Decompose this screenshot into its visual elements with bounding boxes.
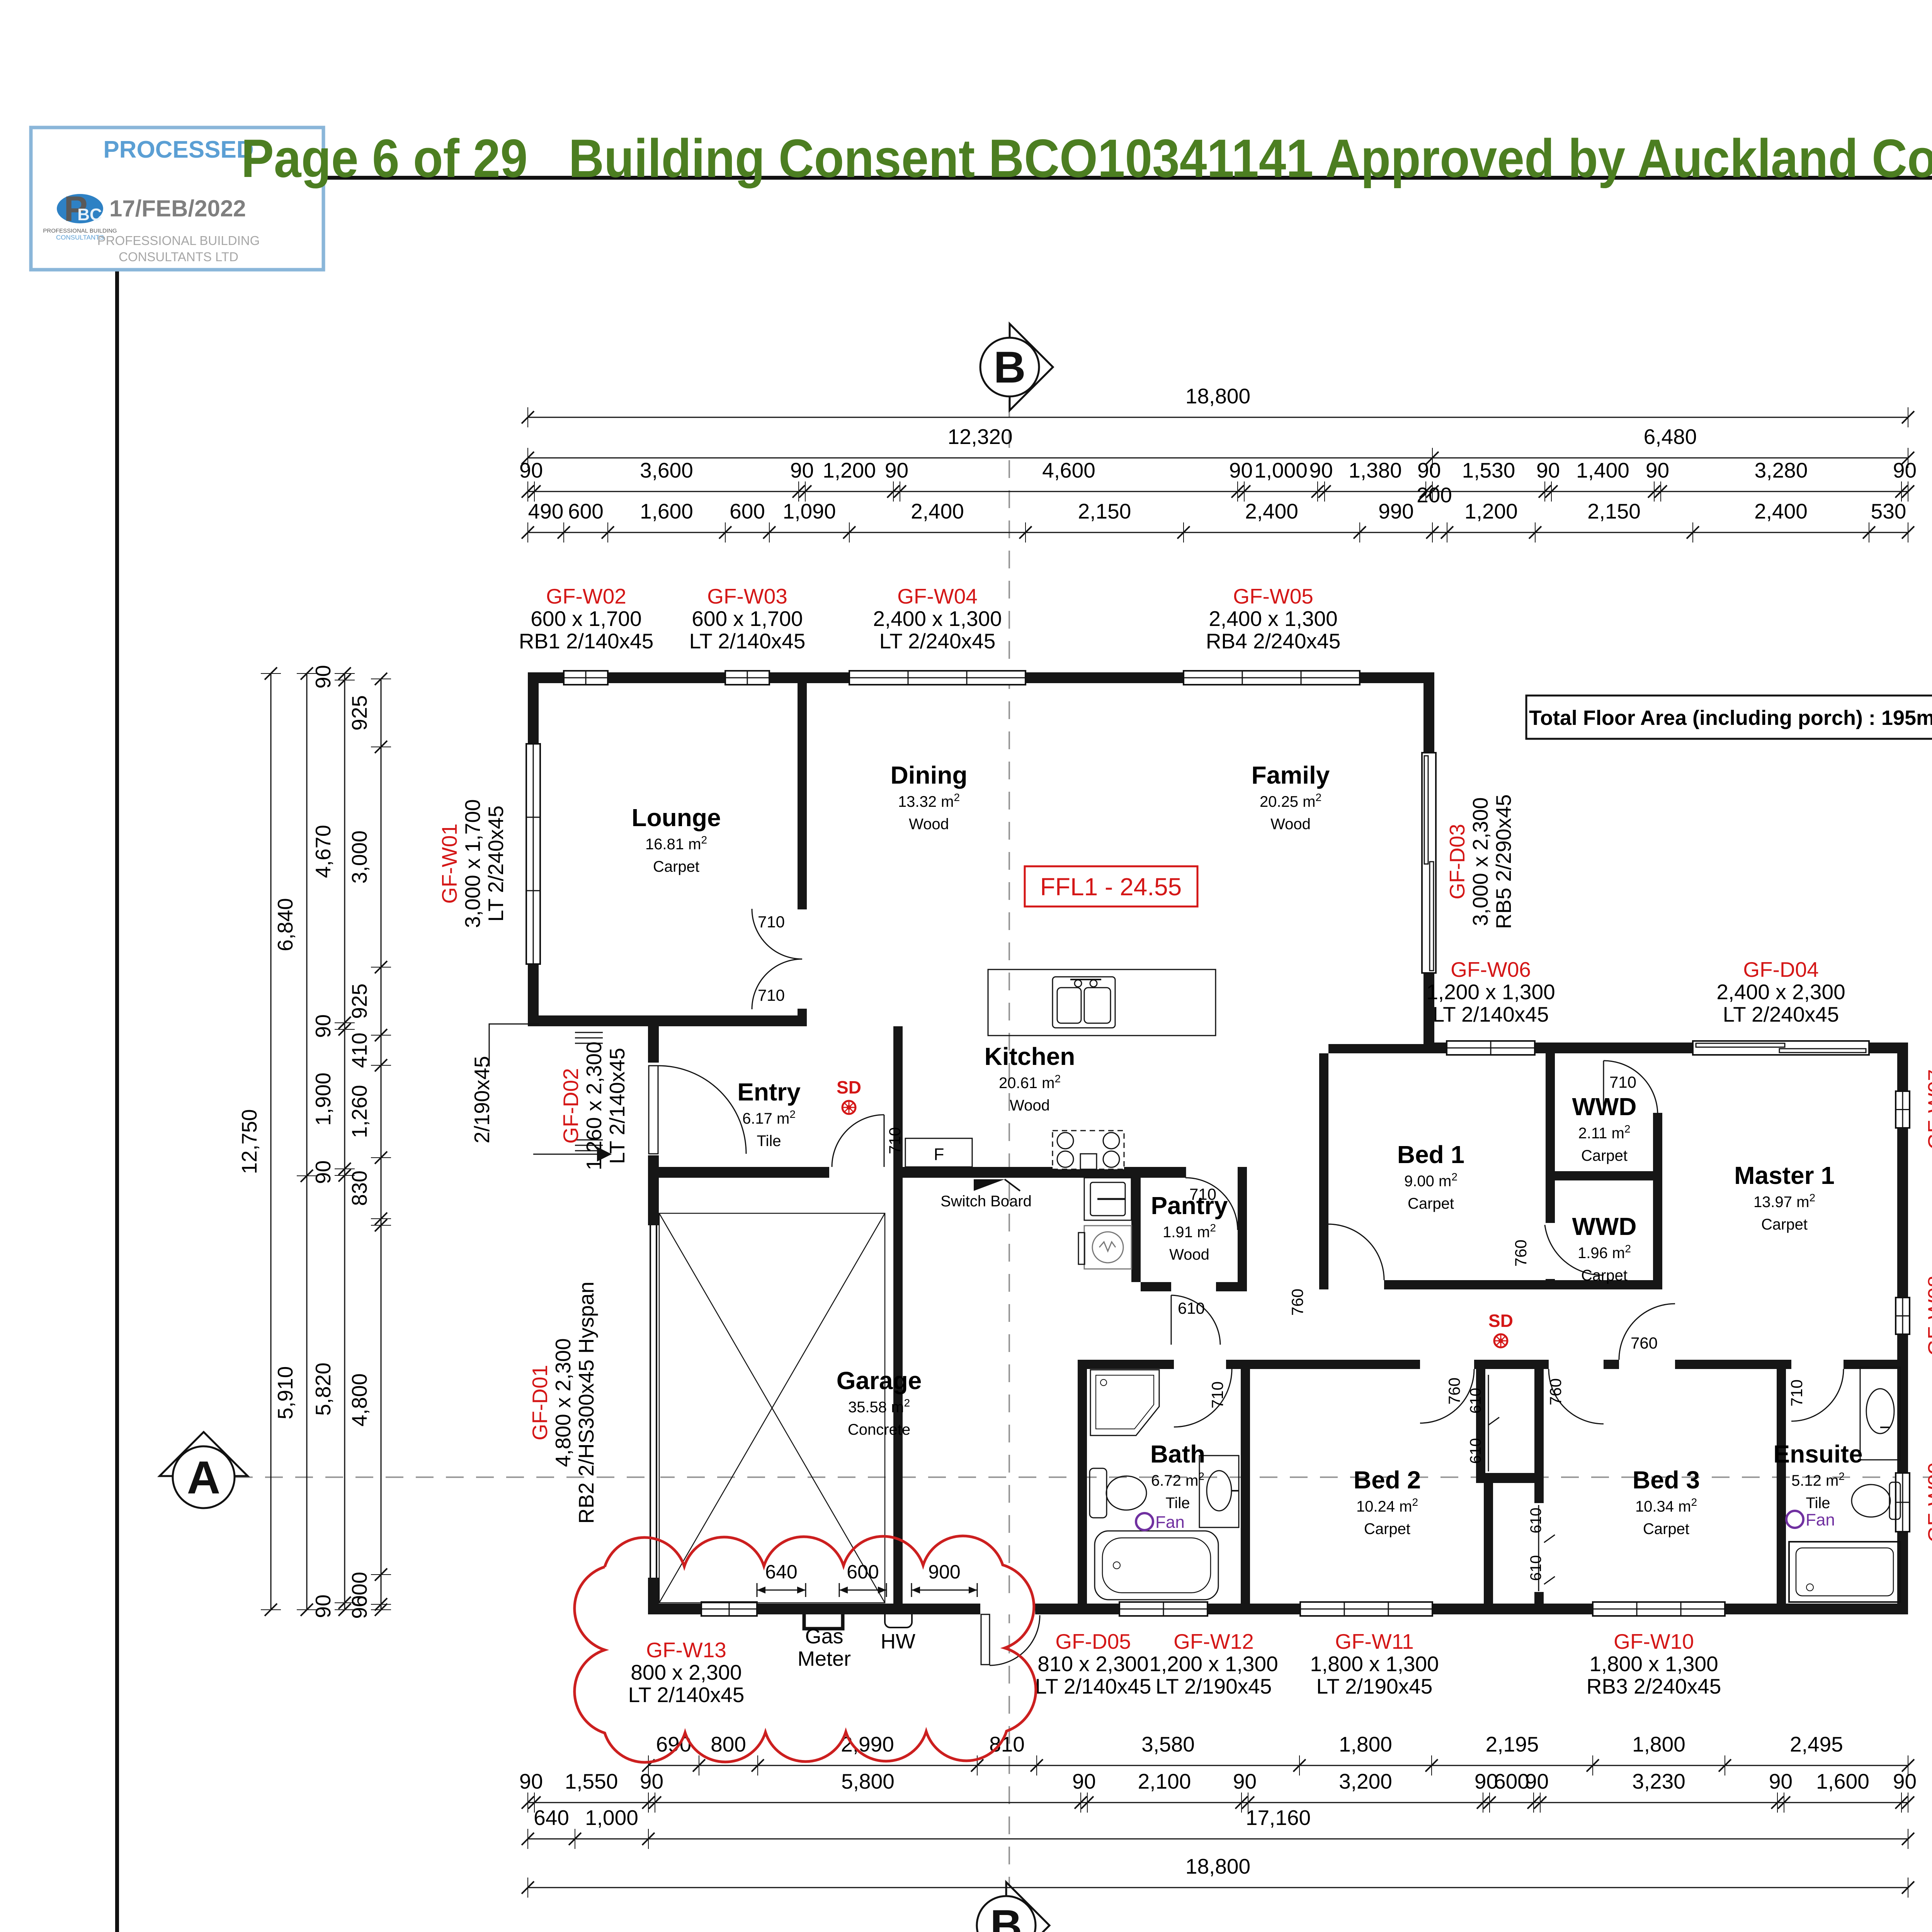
svg-text:1,000: 1,000 bbox=[1254, 458, 1308, 482]
svg-text:4,600: 4,600 bbox=[1042, 458, 1095, 482]
svg-text:BC: BC bbox=[77, 205, 102, 224]
svg-text:LT 2/190x45: LT 2/190x45 bbox=[1316, 1674, 1433, 1698]
svg-text:13.97 m2: 13.97 m2 bbox=[1753, 1192, 1815, 1211]
svg-text:Concrete: Concrete bbox=[848, 1421, 910, 1438]
svg-text:1.91 m2: 1.91 m2 bbox=[1163, 1222, 1216, 1241]
svg-text:90: 90 bbox=[311, 665, 335, 689]
svg-text:Switch Board: Switch Board bbox=[940, 1193, 1032, 1210]
svg-text:810: 810 bbox=[989, 1732, 1025, 1756]
svg-text:Master 1: Master 1 bbox=[1734, 1162, 1835, 1189]
svg-text:4,670: 4,670 bbox=[311, 825, 335, 878]
svg-text:Gas: Gas bbox=[805, 1625, 843, 1648]
svg-text:2.11 m2: 2.11 m2 bbox=[1578, 1123, 1631, 1142]
svg-text:610: 610 bbox=[1178, 1299, 1205, 1317]
svg-text:FFL1 - 24.55: FFL1 - 24.55 bbox=[1040, 873, 1182, 901]
svg-text:2/190x45: 2/190x45 bbox=[470, 1056, 494, 1143]
svg-text:90: 90 bbox=[311, 1014, 335, 1038]
svg-text:10.24 m2: 10.24 m2 bbox=[1356, 1496, 1418, 1515]
svg-text:1,200 x 1,300: 1,200 x 1,300 bbox=[1149, 1652, 1278, 1676]
svg-text:CONSULTANTS LTD: CONSULTANTS LTD bbox=[119, 250, 238, 264]
svg-text:90: 90 bbox=[1525, 1769, 1549, 1793]
svg-text:GF-W10: GF-W10 bbox=[1614, 1629, 1694, 1653]
svg-text:Carpet: Carpet bbox=[1643, 1520, 1689, 1537]
svg-text:GF-W04: GF-W04 bbox=[897, 584, 978, 608]
svg-text:90: 90 bbox=[640, 1769, 663, 1793]
svg-text:Bath: Bath bbox=[1150, 1440, 1205, 1468]
svg-text:710: 710 bbox=[1208, 1381, 1226, 1408]
svg-text:1,200 x 1,300: 1,200 x 1,300 bbox=[1426, 980, 1555, 1004]
svg-text:710: 710 bbox=[758, 986, 785, 1004]
svg-text:GF-W11: GF-W11 bbox=[1335, 1629, 1414, 1653]
svg-text:RB3 2/240x45: RB3 2/240x45 bbox=[1587, 1674, 1721, 1698]
svg-text:PROFESSIONAL BUILDING: PROFESSIONAL BUILDING bbox=[97, 233, 260, 248]
svg-text:GF-D01: GF-D01 bbox=[528, 1365, 552, 1440]
svg-text:RB1 2/140x45: RB1 2/140x45 bbox=[519, 629, 654, 653]
svg-text:2,150: 2,150 bbox=[1078, 499, 1131, 523]
svg-text:90: 90 bbox=[1893, 458, 1917, 482]
svg-text:GF-W09: GF-W09 bbox=[1923, 1462, 1932, 1543]
svg-text:LT 2/140x45: LT 2/140x45 bbox=[628, 1683, 745, 1707]
svg-text:GF-W13: GF-W13 bbox=[646, 1638, 726, 1662]
svg-text:LT 2/140x45: LT 2/140x45 bbox=[605, 1048, 629, 1164]
svg-text:1,200: 1,200 bbox=[1464, 499, 1518, 523]
svg-text:GF-W03: GF-W03 bbox=[707, 584, 787, 608]
svg-text:6,480: 6,480 bbox=[1644, 425, 1697, 449]
svg-text:B: B bbox=[990, 1901, 1022, 1932]
svg-text:Wood: Wood bbox=[1010, 1097, 1050, 1114]
svg-text:600 x 1,700: 600 x 1,700 bbox=[692, 607, 803, 631]
svg-text:HW: HW bbox=[881, 1630, 915, 1653]
svg-text:1,550: 1,550 bbox=[565, 1769, 618, 1793]
svg-text:2,990: 2,990 bbox=[841, 1732, 894, 1756]
svg-text:Tile: Tile bbox=[1166, 1495, 1190, 1512]
svg-text:3,230: 3,230 bbox=[1632, 1769, 1685, 1793]
svg-text:GF-W05: GF-W05 bbox=[1233, 584, 1313, 608]
svg-text:LT 2/140x45: LT 2/140x45 bbox=[689, 629, 806, 653]
svg-text:LT 2/140x45: LT 2/140x45 bbox=[1035, 1674, 1151, 1698]
svg-text:Carpet: Carpet bbox=[1761, 1216, 1808, 1233]
svg-text:GF-D05: GF-D05 bbox=[1055, 1629, 1131, 1653]
svg-text:3,000 x 1,700: 3,000 x 1,700 bbox=[461, 799, 485, 928]
svg-text:90: 90 bbox=[885, 458, 908, 482]
svg-text:2,495: 2,495 bbox=[1790, 1732, 1843, 1756]
svg-text:90: 90 bbox=[519, 1769, 543, 1793]
svg-text:1,530: 1,530 bbox=[1462, 458, 1515, 482]
svg-text:Bed 3: Bed 3 bbox=[1633, 1466, 1700, 1494]
svg-text:Wood: Wood bbox=[1270, 816, 1311, 833]
svg-text:2,400: 2,400 bbox=[1754, 499, 1808, 523]
svg-text:Carpet: Carpet bbox=[1581, 1147, 1628, 1164]
svg-text:3,000: 3,000 bbox=[347, 830, 371, 884]
svg-text:90: 90 bbox=[1229, 458, 1253, 482]
svg-text:12,750: 12,750 bbox=[237, 1109, 261, 1174]
svg-text:18,800: 18,800 bbox=[1185, 384, 1250, 408]
svg-text:3,000 x 2,300: 3,000 x 2,300 bbox=[1468, 797, 1492, 926]
svg-text:LT 2/240x45: LT 2/240x45 bbox=[879, 629, 996, 653]
svg-text:Tile: Tile bbox=[1806, 1495, 1830, 1512]
svg-text:RB4 2/240x45: RB4 2/240x45 bbox=[1206, 629, 1341, 653]
svg-text:Carpet: Carpet bbox=[1364, 1520, 1410, 1537]
svg-text:4,800: 4,800 bbox=[347, 1373, 371, 1427]
svg-text:1,000: 1,000 bbox=[585, 1806, 638, 1830]
svg-text:3,580: 3,580 bbox=[1141, 1732, 1195, 1756]
svg-text:1,800: 1,800 bbox=[1339, 1732, 1392, 1756]
svg-text:WWD: WWD bbox=[1572, 1093, 1636, 1121]
svg-text:2,150: 2,150 bbox=[1587, 499, 1641, 523]
svg-text:10.34 m2: 10.34 m2 bbox=[1635, 1496, 1697, 1515]
svg-text:GF-W01: GF-W01 bbox=[437, 823, 461, 904]
svg-text:Wood: Wood bbox=[909, 816, 949, 833]
svg-text:GF-D04: GF-D04 bbox=[1743, 957, 1819, 981]
svg-text:GF-W12: GF-W12 bbox=[1173, 1629, 1254, 1653]
svg-text:1,800: 1,800 bbox=[1632, 1732, 1685, 1756]
svg-text:1,200: 1,200 bbox=[823, 458, 876, 482]
svg-text:90: 90 bbox=[1536, 458, 1560, 482]
svg-text:490: 490 bbox=[528, 499, 564, 523]
svg-text:1,600: 1,600 bbox=[640, 499, 693, 523]
svg-text:20.61 m2: 20.61 m2 bbox=[999, 1073, 1061, 1092]
svg-text:760: 760 bbox=[1512, 1240, 1530, 1267]
svg-text:1.96 m2: 1.96 m2 bbox=[1578, 1243, 1631, 1262]
svg-text:RB2 2/HS300x45 Hyspan: RB2 2/HS300x45 Hyspan bbox=[574, 1282, 598, 1524]
svg-text:20.25 m2: 20.25 m2 bbox=[1260, 791, 1321, 810]
svg-text:90: 90 bbox=[1893, 1769, 1917, 1793]
svg-text:GF-W07: GF-W07 bbox=[1923, 1069, 1932, 1150]
svg-text:SD: SD bbox=[1488, 1311, 1513, 1331]
svg-text:CONSULTANTS: CONSULTANTS bbox=[56, 234, 104, 241]
svg-text:710: 710 bbox=[1609, 1073, 1636, 1091]
svg-text:1,260: 1,260 bbox=[347, 1085, 371, 1138]
svg-text:90: 90 bbox=[347, 1595, 371, 1619]
svg-text:3,280: 3,280 bbox=[1755, 458, 1808, 482]
svg-text:F: F bbox=[934, 1145, 944, 1164]
svg-text:90: 90 bbox=[1072, 1769, 1096, 1793]
svg-text:SD: SD bbox=[837, 1077, 861, 1097]
svg-text:760: 760 bbox=[1288, 1289, 1306, 1316]
svg-text:12,320: 12,320 bbox=[947, 425, 1012, 449]
svg-text:Carpet: Carpet bbox=[1408, 1195, 1454, 1212]
svg-text:610: 610 bbox=[1467, 1388, 1484, 1414]
svg-text:710: 710 bbox=[1787, 1379, 1806, 1406]
svg-text:90: 90 bbox=[311, 1160, 335, 1184]
svg-text:1,400: 1,400 bbox=[1576, 458, 1629, 482]
svg-text:6.72 m2: 6.72 m2 bbox=[1151, 1470, 1204, 1489]
svg-text:3,600: 3,600 bbox=[640, 458, 693, 482]
svg-text:2,400: 2,400 bbox=[1245, 499, 1298, 523]
svg-text:640: 640 bbox=[765, 1561, 797, 1583]
svg-text:2,400 x 2,300: 2,400 x 2,300 bbox=[1716, 980, 1845, 1004]
svg-text:16.81 m2: 16.81 m2 bbox=[645, 834, 707, 853]
svg-text:GF-D02: GF-D02 bbox=[559, 1068, 583, 1144]
svg-text:2,400 x 1,300: 2,400 x 1,300 bbox=[1209, 607, 1337, 631]
svg-text:1,090: 1,090 bbox=[783, 499, 836, 523]
svg-text:Garage: Garage bbox=[837, 1367, 922, 1395]
svg-text:WWD: WWD bbox=[1572, 1213, 1636, 1240]
svg-text:5,820: 5,820 bbox=[311, 1362, 335, 1416]
svg-text:Entry: Entry bbox=[737, 1078, 801, 1106]
svg-text:GF-W06: GF-W06 bbox=[1451, 957, 1531, 981]
svg-text:Dining: Dining bbox=[890, 761, 967, 789]
svg-text:Fan: Fan bbox=[1806, 1510, 1835, 1529]
svg-text:17/FEB/2022: 17/FEB/2022 bbox=[109, 196, 246, 221]
svg-text:Total Floor Area (including po: Total Floor Area (including porch) : 195… bbox=[1529, 706, 1932, 730]
svg-text:710: 710 bbox=[886, 1127, 904, 1154]
svg-text:Fan: Fan bbox=[1155, 1513, 1185, 1532]
svg-text:9.00 m2: 9.00 m2 bbox=[1404, 1171, 1458, 1190]
svg-text:B: B bbox=[993, 343, 1026, 392]
svg-text:LT 2/140x45: LT 2/140x45 bbox=[1433, 1002, 1549, 1026]
svg-text:600 x 1,700: 600 x 1,700 bbox=[531, 607, 641, 631]
svg-text:760: 760 bbox=[1546, 1378, 1565, 1405]
svg-text:2,100: 2,100 bbox=[1138, 1769, 1191, 1793]
svg-text:GF-W02: GF-W02 bbox=[546, 584, 626, 608]
svg-text:1,800 x 1,300: 1,800 x 1,300 bbox=[1310, 1652, 1439, 1676]
svg-text:Carpet: Carpet bbox=[653, 858, 699, 875]
svg-text:600: 600 bbox=[1494, 1769, 1529, 1793]
svg-text:925: 925 bbox=[347, 983, 371, 1019]
svg-text:Carpet: Carpet bbox=[1581, 1267, 1628, 1284]
svg-text:90: 90 bbox=[1646, 458, 1669, 482]
svg-text:PROCESSED: PROCESSED bbox=[103, 136, 253, 163]
svg-text:17,160: 17,160 bbox=[1246, 1806, 1311, 1830]
svg-text:4,800 x 2,300: 4,800 x 2,300 bbox=[551, 1338, 575, 1467]
svg-text:6.17 m2: 6.17 m2 bbox=[742, 1108, 796, 1127]
svg-text:Meter: Meter bbox=[798, 1647, 851, 1670]
svg-text:900: 900 bbox=[928, 1561, 960, 1583]
svg-text:LT 2/190x45: LT 2/190x45 bbox=[1156, 1674, 1272, 1698]
svg-text:A: A bbox=[187, 1452, 221, 1503]
svg-text:GF-D03: GF-D03 bbox=[1445, 824, 1469, 900]
svg-text:760: 760 bbox=[1445, 1378, 1463, 1405]
svg-text:640: 640 bbox=[534, 1806, 569, 1830]
svg-text:90: 90 bbox=[1417, 458, 1441, 482]
svg-text:600: 600 bbox=[730, 499, 765, 523]
svg-text:830: 830 bbox=[347, 1170, 371, 1206]
svg-text:3,200: 3,200 bbox=[1339, 1769, 1392, 1793]
svg-text:5.12 m2: 5.12 m2 bbox=[1791, 1470, 1845, 1489]
svg-text:Tile: Tile bbox=[757, 1133, 781, 1150]
svg-text:800 x 2,300: 800 x 2,300 bbox=[631, 1660, 742, 1684]
svg-text:Lounge: Lounge bbox=[631, 804, 721, 832]
svg-text:2,400: 2,400 bbox=[911, 499, 964, 523]
svg-text:1,900: 1,900 bbox=[311, 1073, 335, 1126]
svg-text:90: 90 bbox=[1309, 458, 1333, 482]
svg-text:410: 410 bbox=[347, 1032, 371, 1068]
svg-text:90: 90 bbox=[790, 458, 814, 482]
svg-text:Bed 1: Bed 1 bbox=[1397, 1141, 1464, 1168]
svg-text:18,800: 18,800 bbox=[1185, 1854, 1250, 1878]
svg-text:1,600: 1,600 bbox=[1816, 1769, 1869, 1793]
svg-text:610: 610 bbox=[1527, 1555, 1544, 1581]
svg-text:1,380: 1,380 bbox=[1349, 458, 1402, 482]
svg-text:760: 760 bbox=[1631, 1334, 1658, 1352]
svg-text:90: 90 bbox=[311, 1594, 335, 1618]
svg-text:610: 610 bbox=[1467, 1438, 1484, 1464]
svg-text:200: 200 bbox=[1417, 483, 1452, 507]
svg-text:Kitchen: Kitchen bbox=[985, 1043, 1075, 1070]
svg-text:Family: Family bbox=[1252, 761, 1330, 789]
svg-text:RB5 2/290x45: RB5 2/290x45 bbox=[1492, 794, 1515, 929]
svg-text:LT 2/240x45: LT 2/240x45 bbox=[1723, 1002, 1839, 1026]
svg-text:90: 90 bbox=[519, 458, 543, 482]
svg-text:600: 600 bbox=[847, 1561, 879, 1583]
svg-text:2,195: 2,195 bbox=[1486, 1732, 1539, 1756]
svg-text:2,400 x 1,300: 2,400 x 1,300 bbox=[873, 607, 1002, 631]
svg-text:GF-W08: GF-W08 bbox=[1923, 1276, 1932, 1356]
svg-text:90: 90 bbox=[1769, 1769, 1793, 1793]
svg-text:925: 925 bbox=[347, 695, 371, 731]
svg-text:600: 600 bbox=[568, 499, 604, 523]
svg-text:Page 6 of 29 Building Consen: Page 6 of 29 Building Consent BCO1034114… bbox=[241, 128, 1932, 189]
svg-text:Pantry: Pantry bbox=[1151, 1192, 1228, 1219]
svg-text:Wood: Wood bbox=[1169, 1246, 1209, 1263]
svg-text:810 x 2,300: 810 x 2,300 bbox=[1037, 1652, 1148, 1676]
svg-text:LT 2/240x45: LT 2/240x45 bbox=[484, 806, 508, 922]
svg-text:5,910: 5,910 bbox=[273, 1366, 297, 1420]
svg-text:13.32 m2: 13.32 m2 bbox=[898, 791, 960, 810]
svg-text:Bed 2: Bed 2 bbox=[1354, 1466, 1421, 1494]
svg-text:990: 990 bbox=[1378, 499, 1414, 523]
svg-text:Ensuite: Ensuite bbox=[1773, 1440, 1862, 1468]
svg-text:6,840: 6,840 bbox=[273, 898, 297, 951]
svg-text:610: 610 bbox=[1527, 1508, 1544, 1534]
svg-text:710: 710 bbox=[758, 913, 785, 931]
svg-text:800: 800 bbox=[711, 1732, 746, 1756]
svg-text:90: 90 bbox=[1233, 1769, 1257, 1793]
svg-text:5,800: 5,800 bbox=[841, 1769, 895, 1793]
svg-text:530: 530 bbox=[1871, 499, 1906, 523]
svg-text:1,800 x 1,300: 1,800 x 1,300 bbox=[1589, 1652, 1718, 1676]
svg-text:35.58 m2: 35.58 m2 bbox=[848, 1397, 910, 1416]
